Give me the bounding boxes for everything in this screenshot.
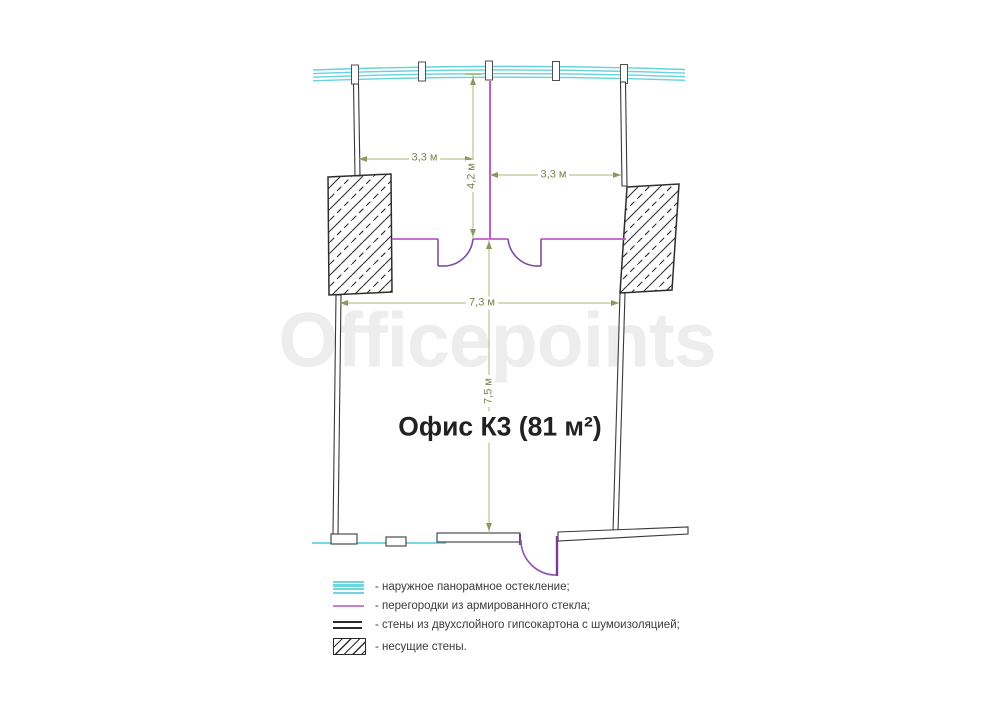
legend-label-glass-partition: - перегородки из армированного стекла; [375, 600, 590, 612]
wall-top-left [354, 84, 361, 176]
entrance-door [520, 534, 557, 576]
legend-label-drywall: - стены из двухслойного гипсокартона с ш… [375, 619, 680, 631]
dim-right-room-width: 3,3 м [538, 168, 570, 181]
wall-stub-bottom [386, 537, 406, 546]
wall-foot-left [331, 534, 357, 544]
interior-door-left [438, 239, 473, 266]
wall-left-lower [333, 295, 341, 534]
dim-hall-width: 7,3 м [466, 296, 498, 309]
glass-partition-swatch [333, 605, 369, 607]
floor-plan-page: Officepoints [0, 0, 996, 706]
load-bearing-wall-right [620, 184, 679, 293]
wall-top-right [621, 82, 628, 186]
legend-item-drywall: - стены из двухслойного гипсокартона с ш… [333, 619, 680, 631]
dim-left-room-width: 3,3 м [409, 152, 441, 165]
bearing-wall-swatch [333, 638, 369, 655]
panoramic-glazing-band [313, 66, 685, 80]
room-title: Офис К3 (81 м²) [393, 412, 606, 443]
wall-bottom-left-segment [437, 533, 520, 542]
legend-item-glass-partition: - перегородки из армированного стекла; [333, 600, 590, 612]
load-bearing-walls [328, 174, 679, 295]
interior-door-right [508, 239, 541, 266]
legend-label-bearing-wall: - несущие стены. [375, 641, 467, 653]
legend-item-glazing: - наружное панорамное остекление; [333, 580, 570, 595]
drywall-walls [331, 82, 688, 546]
glazing-mullions [352, 61, 628, 84]
dim-hall-depth: 7,5 м [482, 375, 495, 407]
load-bearing-wall-left [328, 174, 392, 295]
wall-bottom-right-segment [558, 527, 688, 541]
wall-right-lower [613, 293, 625, 532]
legend-item-bearing-wall: - несущие стены. [333, 638, 467, 655]
drywall-swatch [333, 619, 369, 630]
glazing-swatch [333, 580, 369, 595]
legend-label-glazing: - наружное панорамное остекление; [375, 581, 570, 593]
dim-rooms-depth: 4,2 м [466, 160, 479, 192]
